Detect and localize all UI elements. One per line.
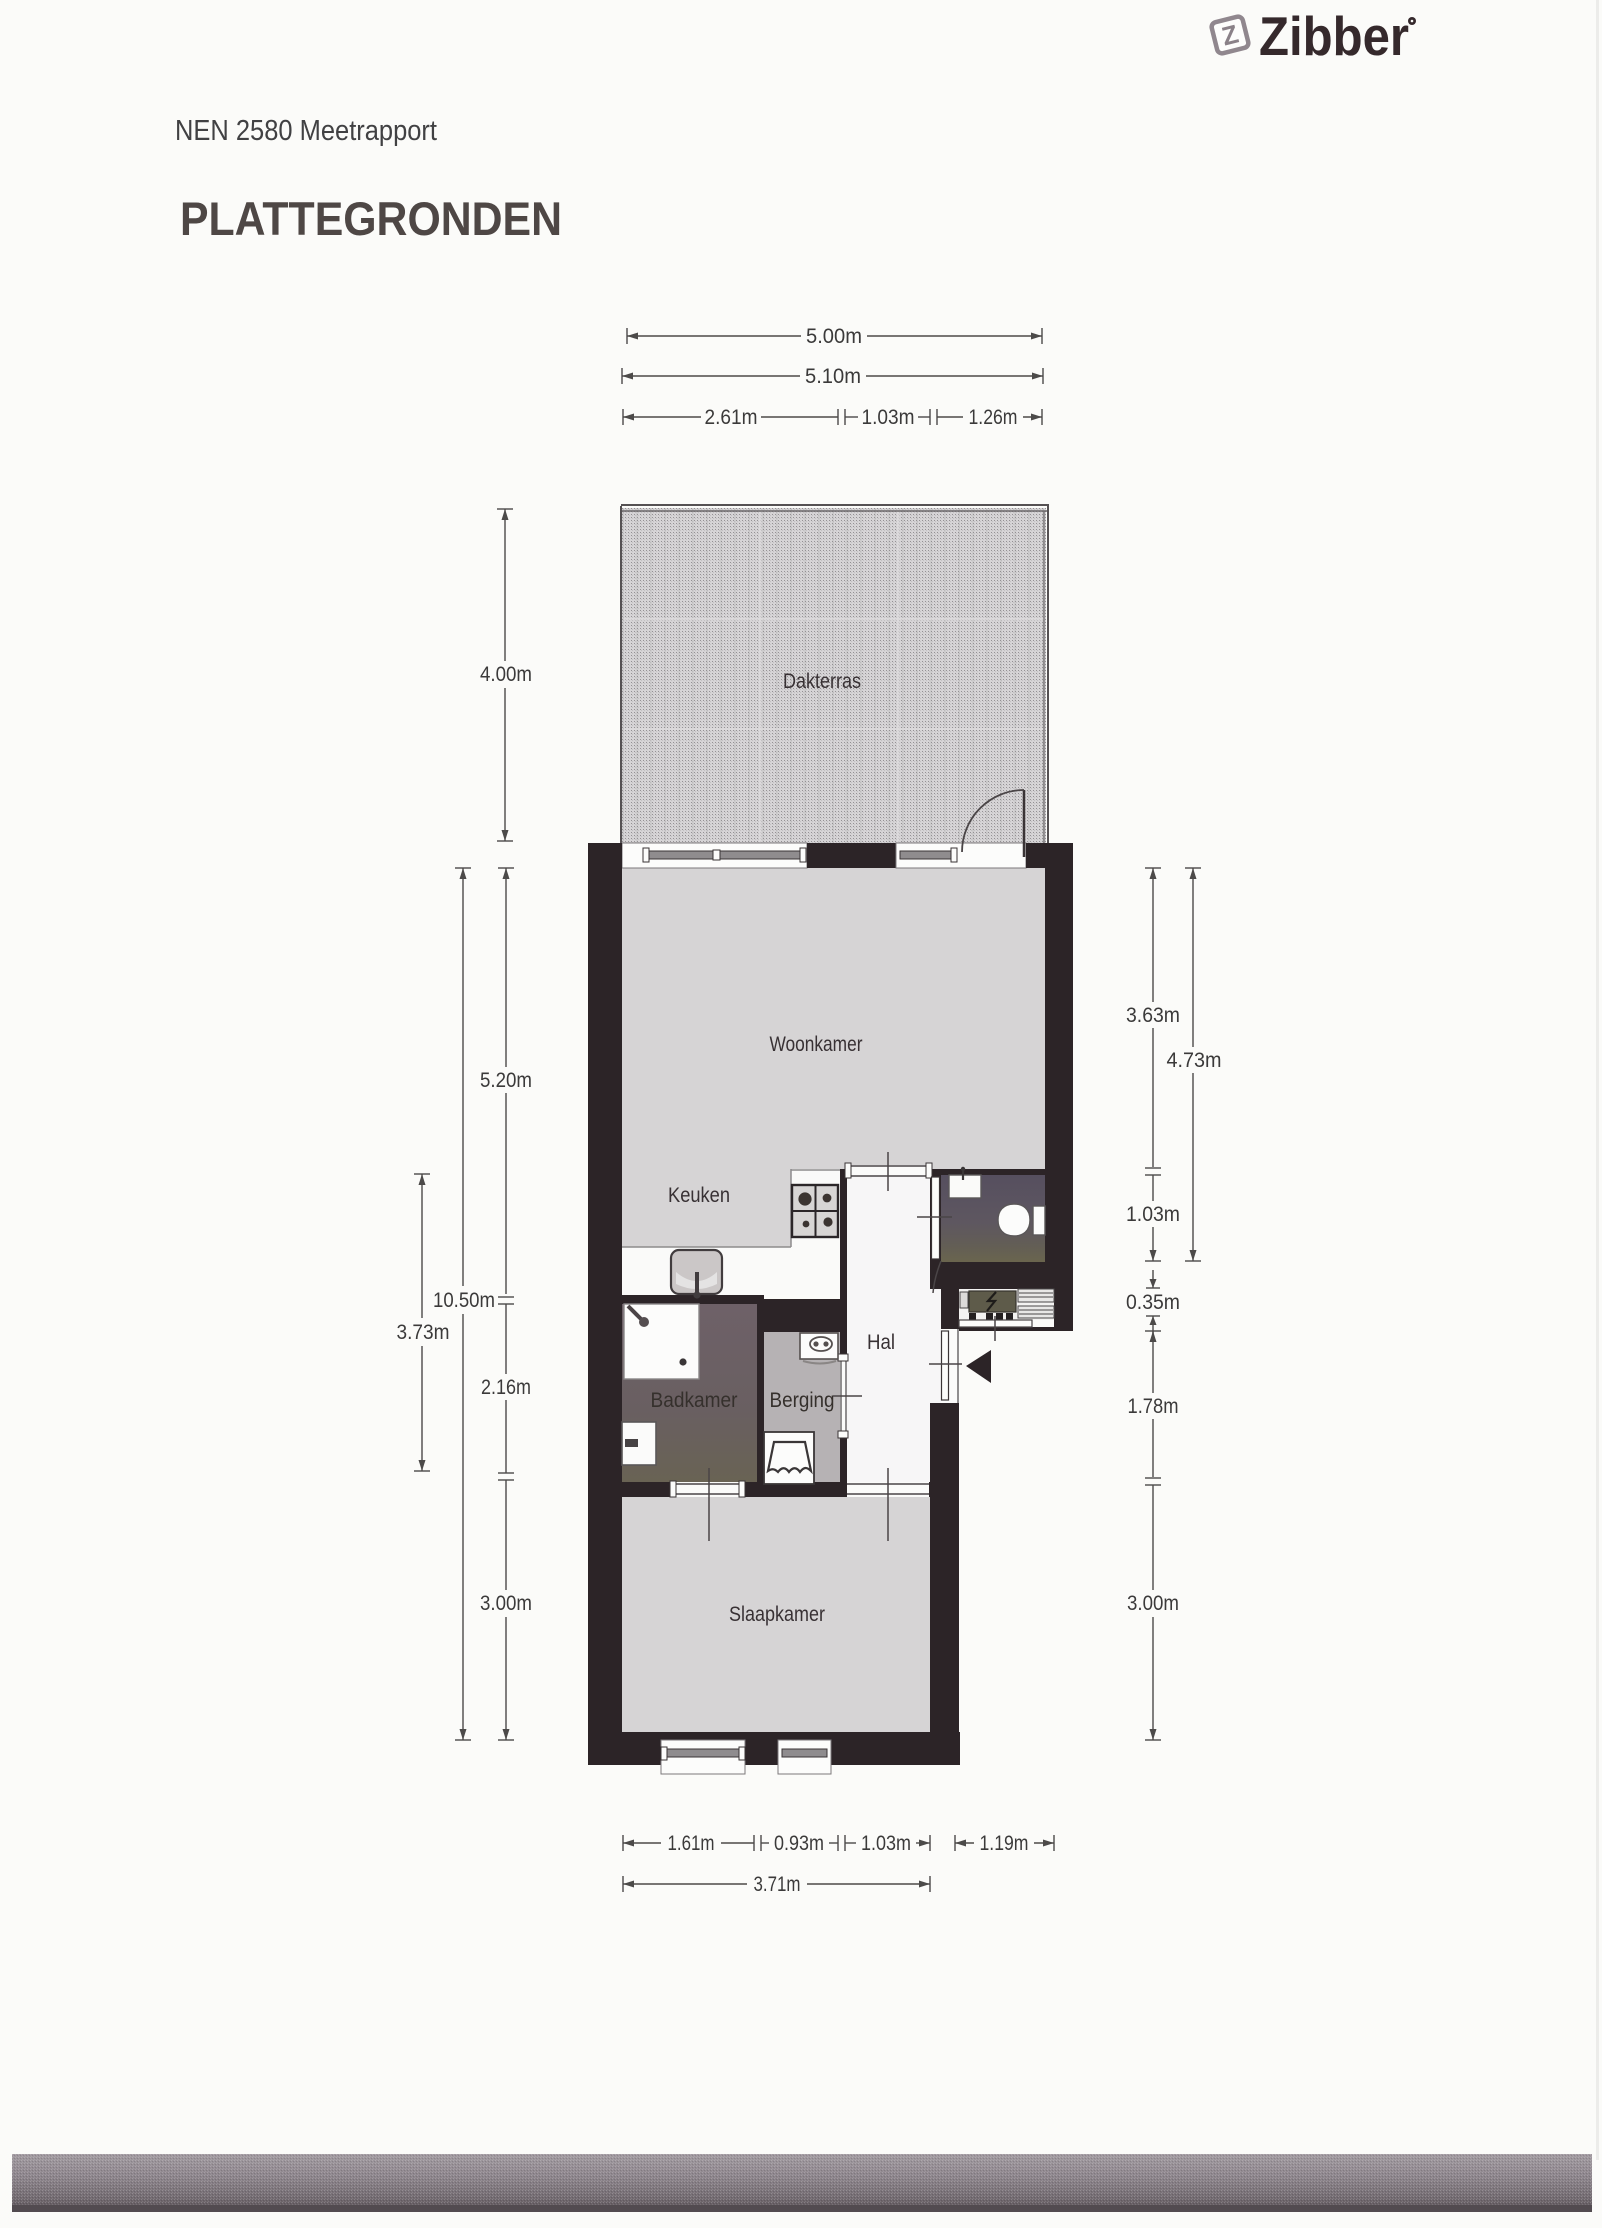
svg-text:Dakterras: Dakterras — [783, 670, 861, 693]
svg-text:1.03m: 1.03m — [862, 406, 915, 429]
svg-text:3.00m: 3.00m — [480, 1592, 532, 1615]
svg-text:1.61m: 1.61m — [668, 1832, 715, 1855]
svg-text:4.73m: 4.73m — [1167, 1049, 1222, 1072]
svg-text:10.50m: 10.50m — [433, 1289, 495, 1312]
svg-text:1.19m: 1.19m — [980, 1832, 1029, 1855]
svg-text:Slaapkamer: Slaapkamer — [729, 1603, 825, 1626]
svg-text:Badkamer: Badkamer — [651, 1389, 738, 1412]
svg-text:1.26m: 1.26m — [969, 406, 1018, 429]
svg-text:3.63m: 3.63m — [1126, 1004, 1180, 1027]
svg-text:3.00m: 3.00m — [1127, 1592, 1179, 1615]
svg-text:2.16m: 2.16m — [481, 1376, 531, 1399]
svg-text:0.93m: 0.93m — [774, 1832, 824, 1855]
svg-text:PLATTEGRONDEN: PLATTEGRONDEN — [180, 192, 562, 245]
svg-text:4.00m: 4.00m — [480, 663, 532, 686]
svg-text:1.03m: 1.03m — [861, 1832, 911, 1855]
svg-text:5.10m: 5.10m — [805, 365, 861, 388]
svg-text:Hal: Hal — [867, 1331, 895, 1354]
svg-text:3.73m: 3.73m — [397, 1321, 450, 1344]
svg-text:5.20m: 5.20m — [480, 1069, 532, 1092]
svg-text:NEN 2580 Meetrapport: NEN 2580 Meetrapport — [175, 115, 437, 147]
svg-text:0.35m: 0.35m — [1126, 1291, 1180, 1314]
svg-text:1.03m: 1.03m — [1126, 1203, 1180, 1226]
svg-text:1.78m: 1.78m — [1128, 1395, 1179, 1418]
svg-text:Woonkamer: Woonkamer — [770, 1033, 863, 1056]
svg-text:Zibber: Zibber — [1259, 5, 1409, 67]
svg-text:3.71m: 3.71m — [754, 1873, 801, 1896]
svg-text:Berging: Berging — [770, 1389, 835, 1412]
svg-text:5.00m: 5.00m — [806, 325, 862, 348]
svg-text:Keuken: Keuken — [668, 1184, 730, 1207]
svg-text:2.61m: 2.61m — [705, 406, 758, 429]
